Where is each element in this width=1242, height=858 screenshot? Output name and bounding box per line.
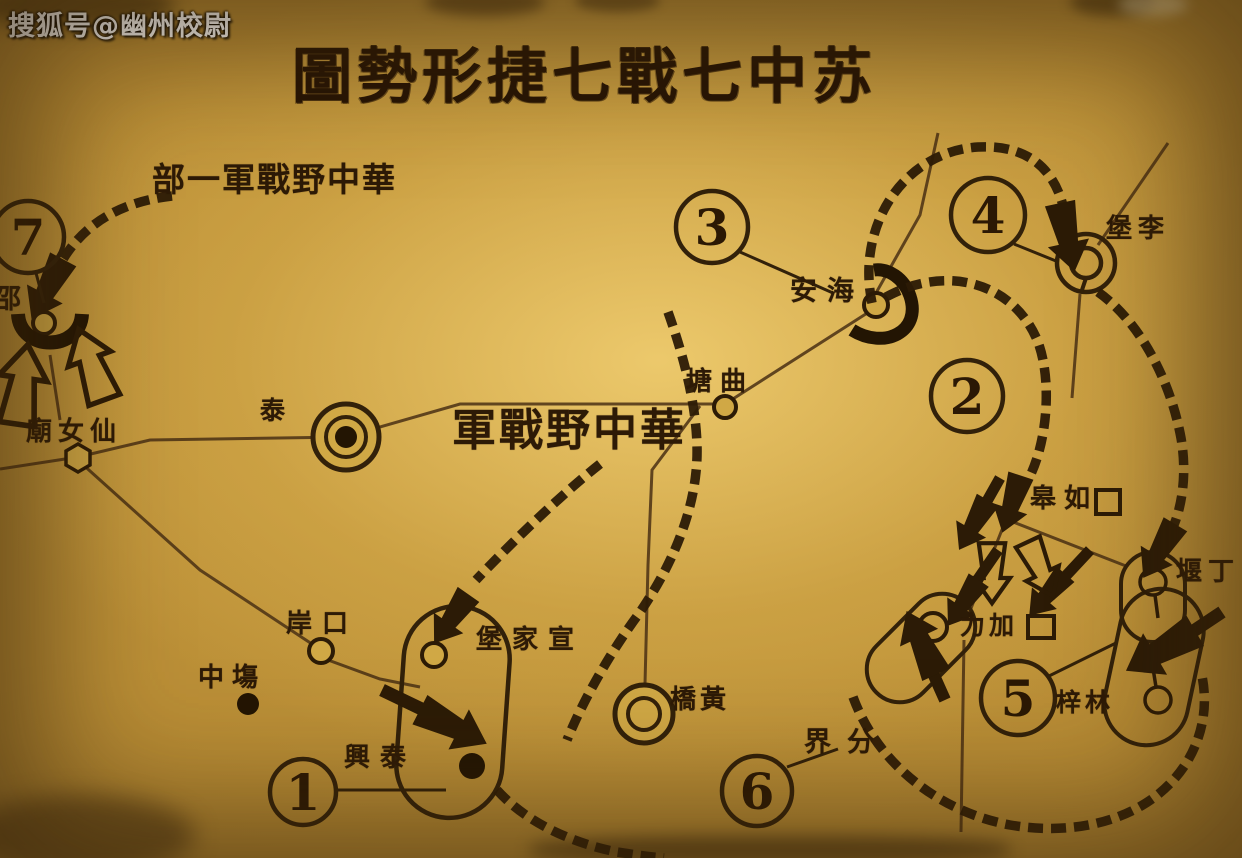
place-label-kouan: 岸口 [286,611,358,638]
arrowhead-libao [1039,199,1095,276]
place-label-fenjie: 界分 [804,729,890,757]
battle-number-4: 4 [971,186,1006,245]
place-label-taizhou: 泰 [260,398,285,424]
battle-number-2: 2 [950,367,985,426]
arrowhead-loop1 [410,690,497,764]
place-label-shaobo: 邵 [0,286,21,314]
road-jiali-south [961,640,964,832]
curve-libao-dingyan [1098,292,1184,534]
battle-pointer-lines [36,244,1116,790]
pointer-4 [1014,244,1056,261]
place-label-huangqiao: 橋黃 [670,687,730,714]
place-label-zhongchang: 中塲 [198,665,266,692]
battle-number-1: 1 [286,763,321,822]
place-label-rugao: 皋如 [1030,486,1098,513]
road-libao-south [1072,294,1080,398]
road-shaobo-south [50,355,60,420]
road-xiannvmiao-kouan [80,462,318,648]
town-taixing-dot [459,753,485,779]
place-label-dingyan: 堰丁 [1176,559,1240,586]
pointer-5 [1049,643,1116,676]
town-rugao-square [1096,490,1120,514]
place-label-taixing: 興泰 [344,745,416,772]
town-huangqiao-outer [615,685,673,743]
town-xuanjiabao [422,643,446,667]
town-kouan [309,639,333,663]
curve-to-shaobo [58,196,172,268]
map-photo: 7 3 4 2 1 6 5 圖勢形捷七戰七中苏 部一軍戰野中華 軍戰野中華 邵 … [0,0,1242,858]
curve-center-south [567,312,697,740]
town-zhongchang-dot [237,693,259,715]
town-linzi [1145,687,1171,713]
place-label-libao: 堡李 [1106,216,1170,243]
map-title: 圖勢形捷七戰七中苏 [292,28,877,115]
hollow-arrow-shaobo-left [0,341,52,427]
town-qutang [714,396,736,418]
place-label-xuanjiabao: 堡家宣 [476,627,584,654]
battle-number-5: 5 [1001,669,1036,728]
place-label-xiannvmiao: 廟女仙 [26,419,122,446]
army-label-huazhong-part: 部一軍戰野中華 [152,163,397,198]
place-label-linzi: 梓林 [1056,690,1114,716]
road-kouan-east [328,660,420,687]
battle-number-7: 7 [11,208,46,267]
hollow-arrowheads [0,322,1069,604]
town-xiannvmiao-hexagon [66,444,90,472]
place-label-qutang: 塘曲 [686,369,754,396]
army-label-huazhong-main: 軍戰野中華 [452,408,687,454]
curve-to-xuanjiabao [476,464,600,580]
battle-number-6: 6 [740,762,775,821]
encirclement-loops [393,552,1212,821]
curve-taixing-exit [497,790,664,858]
town-jiali-square [1028,616,1054,638]
place-label-jiali: 力加 [960,613,1018,639]
city-taizhou-core [335,426,357,448]
sohu-watermark: 搜狐号@幽州校尉 [8,4,232,43]
place-label-haian: 安海 [790,278,864,306]
battle-number-3: 3 [695,198,730,257]
town-dingyan-stem [1155,595,1158,618]
